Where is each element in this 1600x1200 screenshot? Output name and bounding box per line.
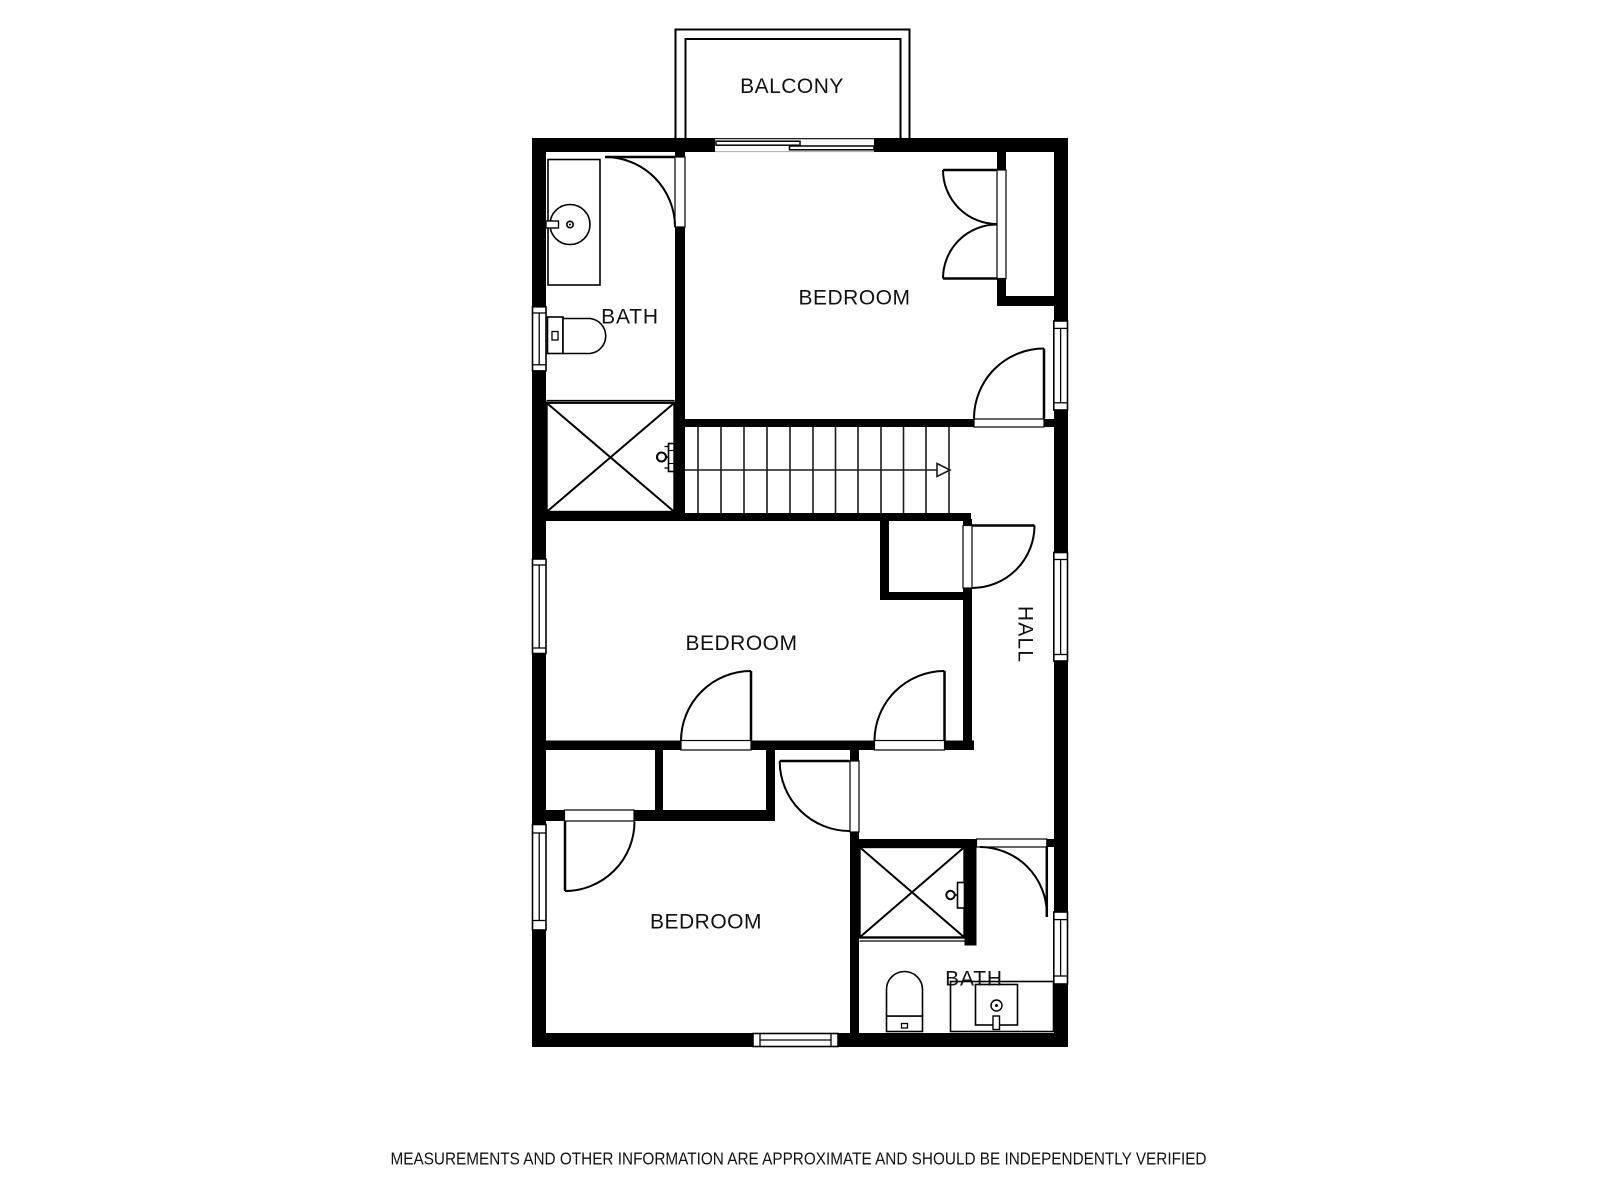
svg-text:BEDROOM: BEDROOM: [685, 632, 797, 655]
svg-text:BATH: BATH: [945, 968, 1003, 991]
svg-text:MEASUREMENTS AND OTHER INFORMA: MEASUREMENTS AND OTHER INFORMATION ARE A…: [391, 1149, 1207, 1169]
svg-text:BALCONY: BALCONY: [740, 75, 844, 98]
svg-text:BATH: BATH: [601, 306, 659, 329]
svg-text:BEDROOM: BEDROOM: [798, 287, 910, 310]
svg-text:HALL: HALL: [1014, 606, 1037, 663]
svg-text:BEDROOM: BEDROOM: [650, 911, 762, 934]
